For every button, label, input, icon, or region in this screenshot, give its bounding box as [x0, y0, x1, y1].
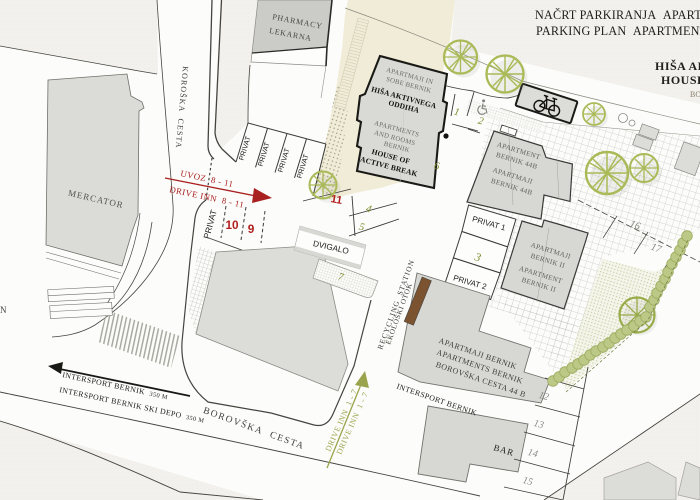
svg-text:9: 9 [248, 222, 255, 236]
svg-text:HIŠA AKTIVNEGA: HIŠA AKTIVNEGA [655, 59, 700, 73]
svg-text:N: N [0, 305, 7, 315]
svg-text:PARKING PLAN APARTMENTS BERNI: PARKING PLAN APARTMENTS BERNIK [536, 24, 700, 38]
svg-text:BOROVŠKA: BOROVŠKA [690, 90, 700, 99]
svg-text:11: 11 [330, 193, 344, 207]
svg-text:HOUSE OF: HOUSE OF [661, 73, 700, 87]
svg-text:10: 10 [225, 218, 239, 232]
svg-text:NAČRT PARKIRANJA APARTMAJI: NAČRT PARKIRANJA APARTMAJI [535, 8, 700, 22]
